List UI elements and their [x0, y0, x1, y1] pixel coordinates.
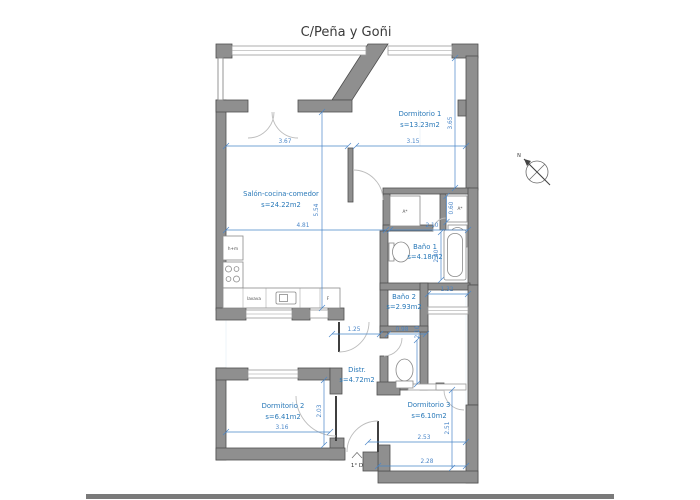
wall-segment — [216, 368, 248, 380]
burner-icon — [234, 267, 239, 272]
room-area-bano-1: s=4.18m2 — [407, 253, 442, 261]
closet-1-label: A* — [403, 209, 408, 214]
dishwasher-label: lavava — [247, 296, 261, 301]
room-area-bano-2: s=2.93m2 — [386, 303, 421, 311]
dim-label: 2.51 — [445, 421, 451, 434]
wall-thin — [218, 58, 223, 100]
dim-label: 0.98 — [396, 327, 409, 333]
toilet-tank — [396, 381, 413, 388]
room-area-dormitorio-3: s=6.10m2 — [411, 412, 446, 420]
wall-segment — [328, 308, 344, 320]
room-area-dormitorio-1: s=13.23m2 — [400, 121, 440, 129]
dim-label: 2.53 — [418, 435, 431, 441]
compass-north-label: N — [517, 153, 521, 159]
wall-segment — [292, 308, 310, 320]
wall-segment — [383, 188, 470, 194]
room-name-bano-1: Baño 1 — [413, 243, 437, 251]
room-name-salon: Salón-cocina-comedor — [243, 190, 319, 198]
wall-segment — [378, 445, 390, 471]
wall-segment — [378, 471, 478, 483]
wall-segment — [216, 448, 345, 460]
wall-segment — [380, 231, 388, 332]
dim-label: 5.54 — [314, 203, 320, 216]
sink-basin — [280, 295, 288, 302]
room-name-dormitorio-3: Dormitorio 3 — [408, 401, 451, 409]
wall-segment — [216, 44, 232, 58]
burner-icon — [226, 266, 232, 272]
cooktop — [223, 262, 243, 288]
wall-segment — [298, 368, 330, 380]
dim-label: 2.28 — [421, 459, 434, 465]
wall-segment — [468, 285, 478, 405]
burner-icon — [226, 277, 231, 282]
room-name-bano-2: Baño 2 — [392, 293, 416, 301]
wall-segment — [468, 188, 478, 285]
closet-2-label: A* — [458, 206, 463, 211]
toilet-icon — [396, 359, 413, 381]
dim-label: 3.65 — [448, 116, 454, 129]
floor-plan-page: C/Peña y Goñi — [0, 0, 700, 500]
wall-pilaster — [458, 100, 466, 116]
room-area-distribuidor: s=4.72m2 — [339, 376, 374, 384]
wall-segment — [440, 194, 446, 230]
dim-label: 0.60 — [449, 201, 455, 214]
page-title: C/Peña y Goñi — [301, 25, 392, 40]
wall-segment — [298, 100, 352, 112]
oven-microwave-label: h+m — [228, 246, 238, 251]
wall-segment — [420, 283, 428, 390]
room-area-dormitorio-2: s=6.41m2 — [265, 413, 300, 421]
floor-plan-drawing: C/Peña y Goñi — [0, 0, 700, 500]
dim-label: 3.15 — [407, 139, 420, 145]
dim-label: 3.67 — [279, 139, 292, 145]
wall-segment — [216, 308, 246, 320]
dim-label: 2.03 — [317, 404, 323, 417]
wall-segment — [216, 100, 248, 112]
room-area-salon: s=24.22m2 — [261, 201, 301, 209]
dim-label: 2.10 — [426, 223, 439, 229]
room-name-dormitorio-2: Dormitorio 2 — [262, 402, 305, 410]
room-name-dormitorio-1: Dormitorio 1 — [399, 110, 442, 118]
wall-segment — [466, 56, 478, 190]
window — [310, 310, 328, 318]
dim-label: 2.10 — [415, 325, 421, 338]
dim-label: 1.25 — [348, 327, 361, 333]
dim-label: 1.32 — [441, 287, 454, 293]
entrance-label: 1° D — [351, 463, 363, 469]
bathtub-inner — [448, 234, 463, 277]
bottom-border — [86, 494, 614, 499]
room-name-distribuidor: Distr. — [348, 366, 366, 374]
burner-icon — [234, 276, 240, 282]
dim-label: 3.16 — [276, 425, 289, 431]
dim-label: 4.81 — [297, 223, 310, 229]
wall-segment — [216, 368, 226, 460]
wall-partition — [348, 148, 353, 202]
